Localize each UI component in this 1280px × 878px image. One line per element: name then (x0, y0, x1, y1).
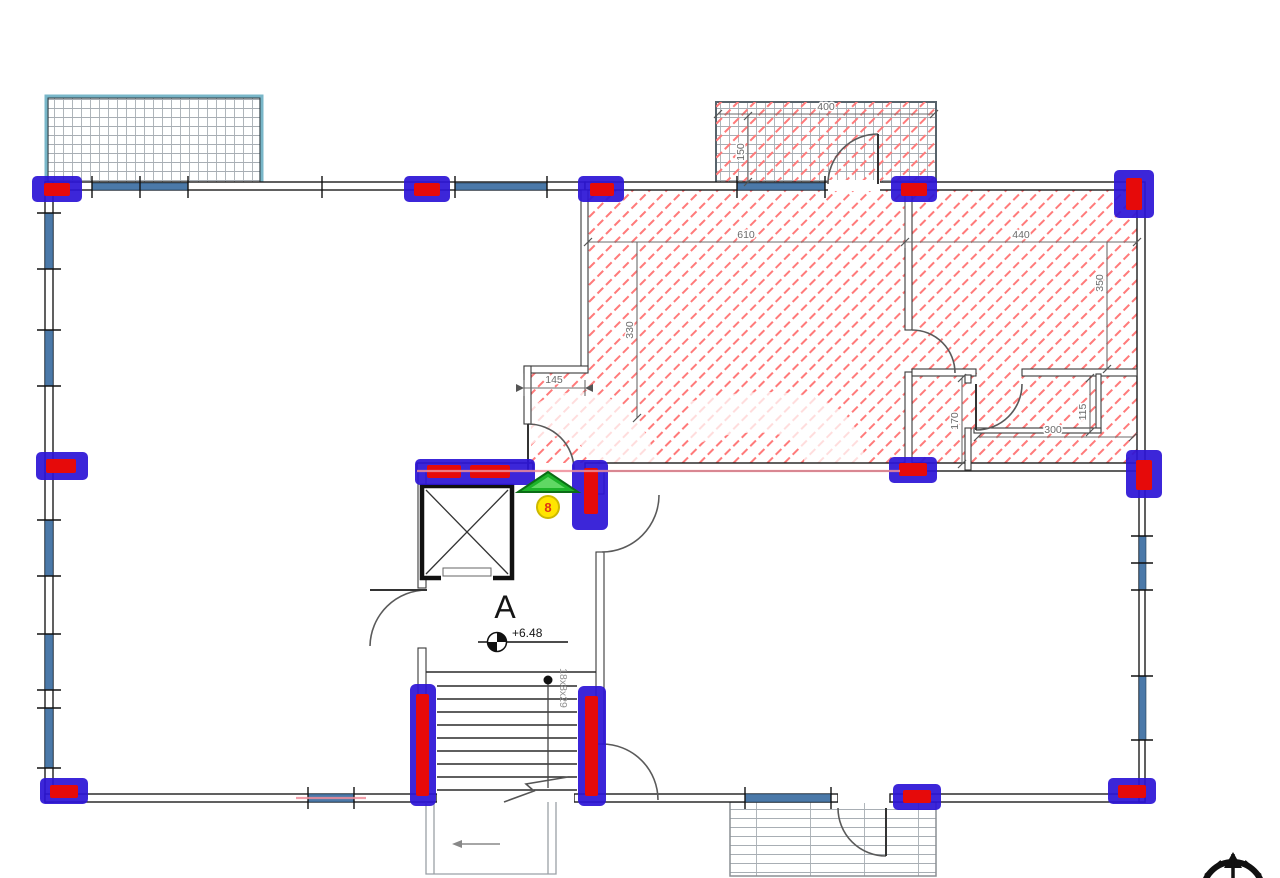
door-stair-lower (602, 744, 658, 800)
window (455, 176, 547, 198)
elevator-door (443, 568, 491, 576)
entry-recess-wall-h (524, 366, 588, 373)
bath-left-wall-a (965, 375, 971, 383)
dim-bath-depth: 170 (949, 412, 961, 430)
window (37, 330, 61, 386)
dim-living-width: 610 (737, 229, 755, 241)
entrance-number: 8 (544, 500, 551, 515)
dim-bedroom-depth: 350 (1094, 274, 1106, 292)
bath-partition-h (974, 428, 1101, 433)
stair-flight-below (426, 802, 556, 874)
column (404, 176, 450, 202)
stair-note: 18x8x29 (557, 668, 569, 708)
window (296, 787, 366, 809)
window (37, 708, 61, 768)
bath-left-wall-b (965, 428, 971, 470)
core-label: A (494, 589, 516, 625)
column (1114, 170, 1154, 218)
balcony-bottom (730, 802, 936, 876)
window (37, 634, 61, 690)
elevator-shaft (422, 486, 512, 581)
bath-partition-v (1096, 374, 1101, 432)
window (37, 213, 61, 269)
window (1131, 676, 1153, 740)
balcony-top-left (46, 96, 262, 186)
entry-recess-wall-v (524, 366, 531, 424)
column (32, 176, 82, 202)
wall-right-upper (1137, 182, 1145, 471)
wall-bottom-a (45, 794, 437, 802)
door-hall-left (370, 590, 427, 646)
floor-plan-page: ba (0, 0, 1280, 878)
bath-top-wall-b (1022, 369, 1137, 376)
wall-unit-bottom-b (585, 463, 1145, 471)
dim-bedroom-width: 440 (1012, 229, 1030, 241)
column (893, 784, 941, 810)
level-elevation: +6.48 (512, 626, 543, 640)
column (578, 686, 606, 806)
dim-entry-recess: 145 (545, 374, 563, 386)
column (36, 452, 88, 480)
wall-right-lower (1139, 466, 1145, 802)
window (1131, 536, 1153, 590)
dim-living-depth: 330 (624, 321, 636, 339)
column (1108, 778, 1156, 804)
floor-plan-canvas: ba (0, 0, 1280, 878)
dim-bath-width: 300 (1044, 424, 1062, 436)
column (578, 176, 624, 202)
room-divider-wall-a (905, 190, 912, 330)
column (410, 684, 436, 806)
dim-top-balcony-depth: 150 (735, 143, 747, 161)
room-divider-wall-b (905, 372, 912, 466)
staircase: 18x8x29 (426, 668, 596, 874)
column (40, 778, 88, 804)
stair-start-dot (544, 676, 553, 685)
dim-top-balcony-width: 400 (817, 101, 835, 113)
window (37, 520, 61, 576)
dim-bath-right-depth: 115 (1077, 403, 1089, 420)
north-compass-icon (1203, 852, 1263, 878)
column (1126, 450, 1162, 498)
column (891, 176, 937, 202)
unit-left-wall (581, 190, 588, 372)
stair-arrow-head (452, 840, 462, 848)
